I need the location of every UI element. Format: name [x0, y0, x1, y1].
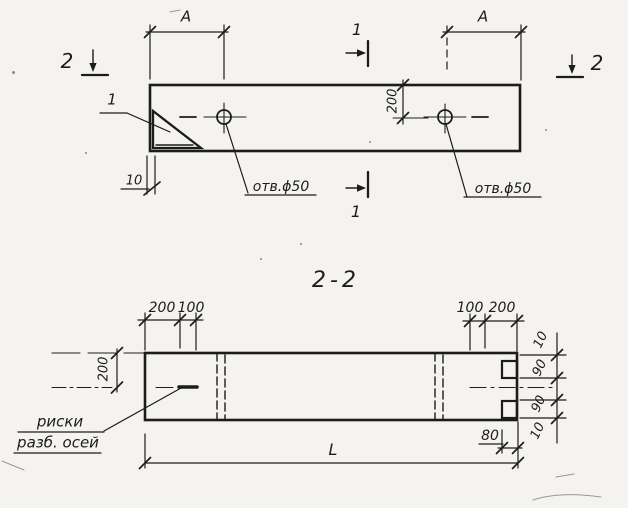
axis-centerline [52, 387, 556, 388]
dim-200-plan-label: 200 [387, 89, 400, 114]
dim-80-label: 80 [481, 429, 499, 443]
section-arrow-icon [89, 63, 96, 72]
paper-speck [545, 129, 547, 131]
end-notch-lower [502, 401, 517, 418]
section-cut-1-bottom-label: 1 [351, 204, 361, 220]
dims-top-left [138, 313, 203, 350]
section-marker-2-left [82, 50, 108, 75]
dim-length-label: L [329, 442, 338, 458]
dim-100-top-right-label: 100 [457, 301, 484, 315]
paper-marks [2, 10, 601, 500]
dim-200-top-left-label: 200 [149, 301, 176, 315]
paper-speck [260, 258, 262, 260]
hole-right [424, 104, 488, 133]
section-marker-1-bottom [346, 172, 368, 197]
section-beam-outline [145, 353, 517, 420]
hole-left [180, 103, 246, 133]
paper-speck [300, 243, 302, 245]
axis-marks-label-line2: разб. осей [17, 436, 99, 451]
hole-label-right: отв.ϕ50 [475, 182, 531, 196]
dims-top-right [463, 314, 524, 351]
detail-callout-label: 1 [107, 93, 117, 108]
hidden-hole-right [435, 353, 443, 420]
section-cut-2-right-label: 2 [591, 53, 604, 73]
plan-beam-outline [150, 85, 520, 151]
section-marker-2-right [557, 55, 583, 77]
section-marker-1-top [346, 41, 368, 66]
dim-a-left [145, 25, 230, 79]
hidden-hole-left [217, 353, 225, 420]
paper-speck [12, 71, 15, 74]
dim-100-top-left-label: 100 [178, 301, 205, 315]
section-arrow-icon [568, 65, 575, 74]
dim-a-right [442, 25, 527, 80]
dim-200-top-right-label: 200 [489, 301, 516, 315]
dim-200-section-label: 200 [98, 357, 111, 382]
dim-10-plan-label: 10 [126, 175, 143, 188]
paper-speck [85, 152, 87, 154]
section-title: 2-2 [312, 270, 360, 292]
dim-a-right-label: A [478, 10, 488, 25]
axis-marks-label-line1: риски [37, 415, 83, 430]
section-arrow-icon [357, 184, 366, 191]
paper-speck [369, 141, 371, 143]
hole-label-left: отв.ϕ50 [253, 180, 309, 194]
dim-a-left-label: A [181, 10, 191, 25]
end-notch-upper [502, 361, 517, 378]
section-cut-2-left-label: 2 [61, 51, 74, 71]
section-cut-1-top-label: 1 [352, 22, 362, 38]
dim-200-section [112, 348, 123, 394]
section-arrow-icon [357, 49, 366, 56]
drawing-sheet: A A 2 2 1 1 200 10 1 отв.ϕ50 отв.ϕ50 2-2… [0, 0, 628, 508]
